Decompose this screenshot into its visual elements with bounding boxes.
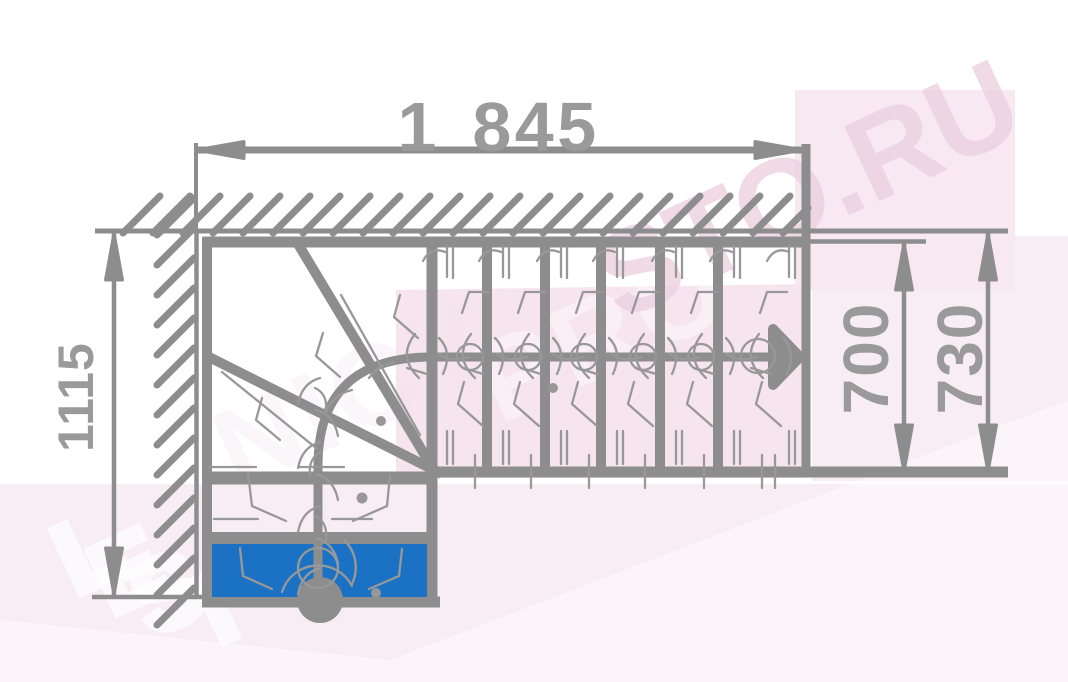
svg-text:700: 700 (830, 302, 902, 415)
svg-text:845: 845 (472, 88, 599, 166)
svg-text:1: 1 (398, 88, 437, 166)
svg-text:1115: 1115 (48, 342, 104, 452)
svg-text:730: 730 (924, 302, 996, 415)
